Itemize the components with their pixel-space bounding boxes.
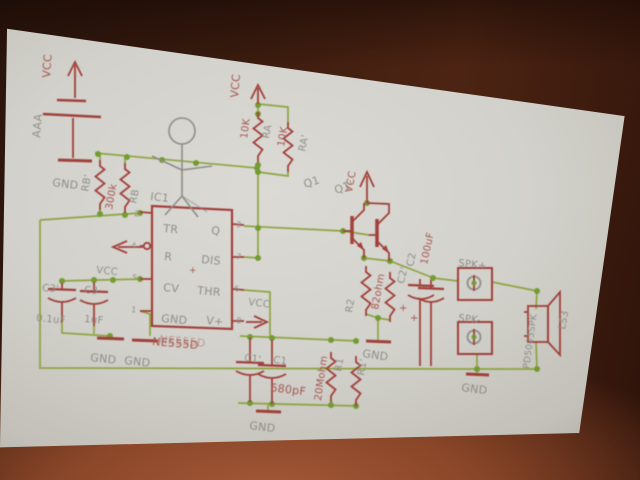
pin-num-4: 4	[131, 241, 137, 250]
c1b-name: C1'	[244, 353, 262, 366]
pin-num-1: 1	[131, 305, 137, 314]
c2-plus-mark: +	[399, 303, 408, 314]
gnd-c1-label: GND	[249, 419, 277, 435]
resistor-rb2	[96, 160, 105, 210]
ra2-name: RA'	[297, 134, 311, 153]
r1-name: R1	[333, 357, 346, 373]
vcc-arrow-vplus	[246, 316, 267, 328]
battery-name: AAA	[30, 113, 45, 138]
pin-num-5: 5	[132, 273, 138, 282]
ra-name: RA	[261, 124, 274, 140]
c1-name: C1	[273, 355, 288, 367]
vcc-reset-label: VCC	[96, 265, 119, 278]
resistor-r2b	[386, 272, 395, 322]
c2-value: 100uF	[419, 231, 437, 265]
gnd-battery-label: GND	[52, 176, 80, 192]
ic1-name: IC1	[150, 190, 170, 205]
r2-name: R2	[344, 298, 357, 314]
rb-value: 300k	[104, 183, 119, 211]
ic-origin-cross: +	[189, 266, 197, 276]
pin-r: R	[164, 250, 173, 264]
c3-value: 1uF	[84, 314, 104, 327]
pin-thr: THR	[196, 284, 222, 299]
resistor-rb	[121, 163, 130, 213]
c2-name: C2	[405, 252, 419, 268]
schematic-labels: VCCAAAGNDRB'300kRBIC1TRQRDISCVTHRGNDV+24…	[30, 54, 571, 436]
pin-num-2: 2	[134, 209, 140, 218]
ic1-value: NE555D	[152, 335, 199, 352]
spk-minus-label: SPK-	[458, 313, 482, 326]
pin-num-6: 6	[234, 284, 240, 293]
rb-name: RB	[128, 188, 142, 204]
r1-value: 20Mohm	[313, 355, 330, 401]
pin-tr: TR	[162, 222, 179, 236]
spk-plus-label: SPK+	[458, 258, 488, 272]
pin-num-8: 8	[236, 316, 242, 325]
vcc-arrow-ra	[251, 85, 265, 104]
vcc-q-label: VCC	[344, 170, 359, 193]
gnd-pin1-label: GND	[124, 354, 151, 370]
rb2-name: RB'	[80, 173, 94, 192]
pin-gnd: GND	[161, 312, 188, 327]
speaker-name: LS3	[557, 310, 571, 331]
gnd-spk-label: GND	[461, 381, 489, 397]
projection-photo: VCCAAAGNDRB'300kRBIC1TRQRDISCVTHRGNDV+24…	[0, 0, 640, 480]
c1-value: 680pF	[270, 381, 307, 398]
c2b-plus-mark: +	[410, 313, 419, 324]
pin-q: Q	[211, 224, 221, 238]
vcc-vplus-label: VCC	[248, 297, 271, 311]
vcc-arrow-q	[360, 172, 374, 203]
circuit-schematic: VCCAAAGNDRB'300kRBIC1TRQRDISCVTHRGNDV+24…	[0, 0, 640, 480]
pin-num-3: 3	[236, 220, 242, 229]
gnd-c3-label: GND	[90, 351, 117, 367]
r2-value: 82ohm	[370, 273, 387, 311]
vcc-arrow-reset	[113, 241, 143, 253]
symbols	[43, 62, 560, 412]
pin-vplus: V+	[206, 314, 224, 328]
q1-name: Q1	[302, 173, 321, 190]
pin-dis: DIS	[201, 253, 222, 268]
r1b-name: R1'	[356, 358, 370, 377]
c3b-name: C3'	[42, 283, 60, 295]
pin-cv: CV	[163, 281, 180, 295]
vcc-battery-label: VCC	[40, 54, 55, 79]
vcc-ra-label: VCC	[228, 73, 243, 98]
transistor-q1b	[367, 203, 389, 261]
pin-num-7: 7	[236, 252, 242, 261]
ra2-value: 10K	[276, 126, 290, 148]
c3-name: C3	[84, 285, 99, 297]
transistor-q1	[343, 203, 364, 258]
ra-value: 10K	[239, 118, 253, 140]
c2b-name: C2'	[396, 266, 410, 285]
